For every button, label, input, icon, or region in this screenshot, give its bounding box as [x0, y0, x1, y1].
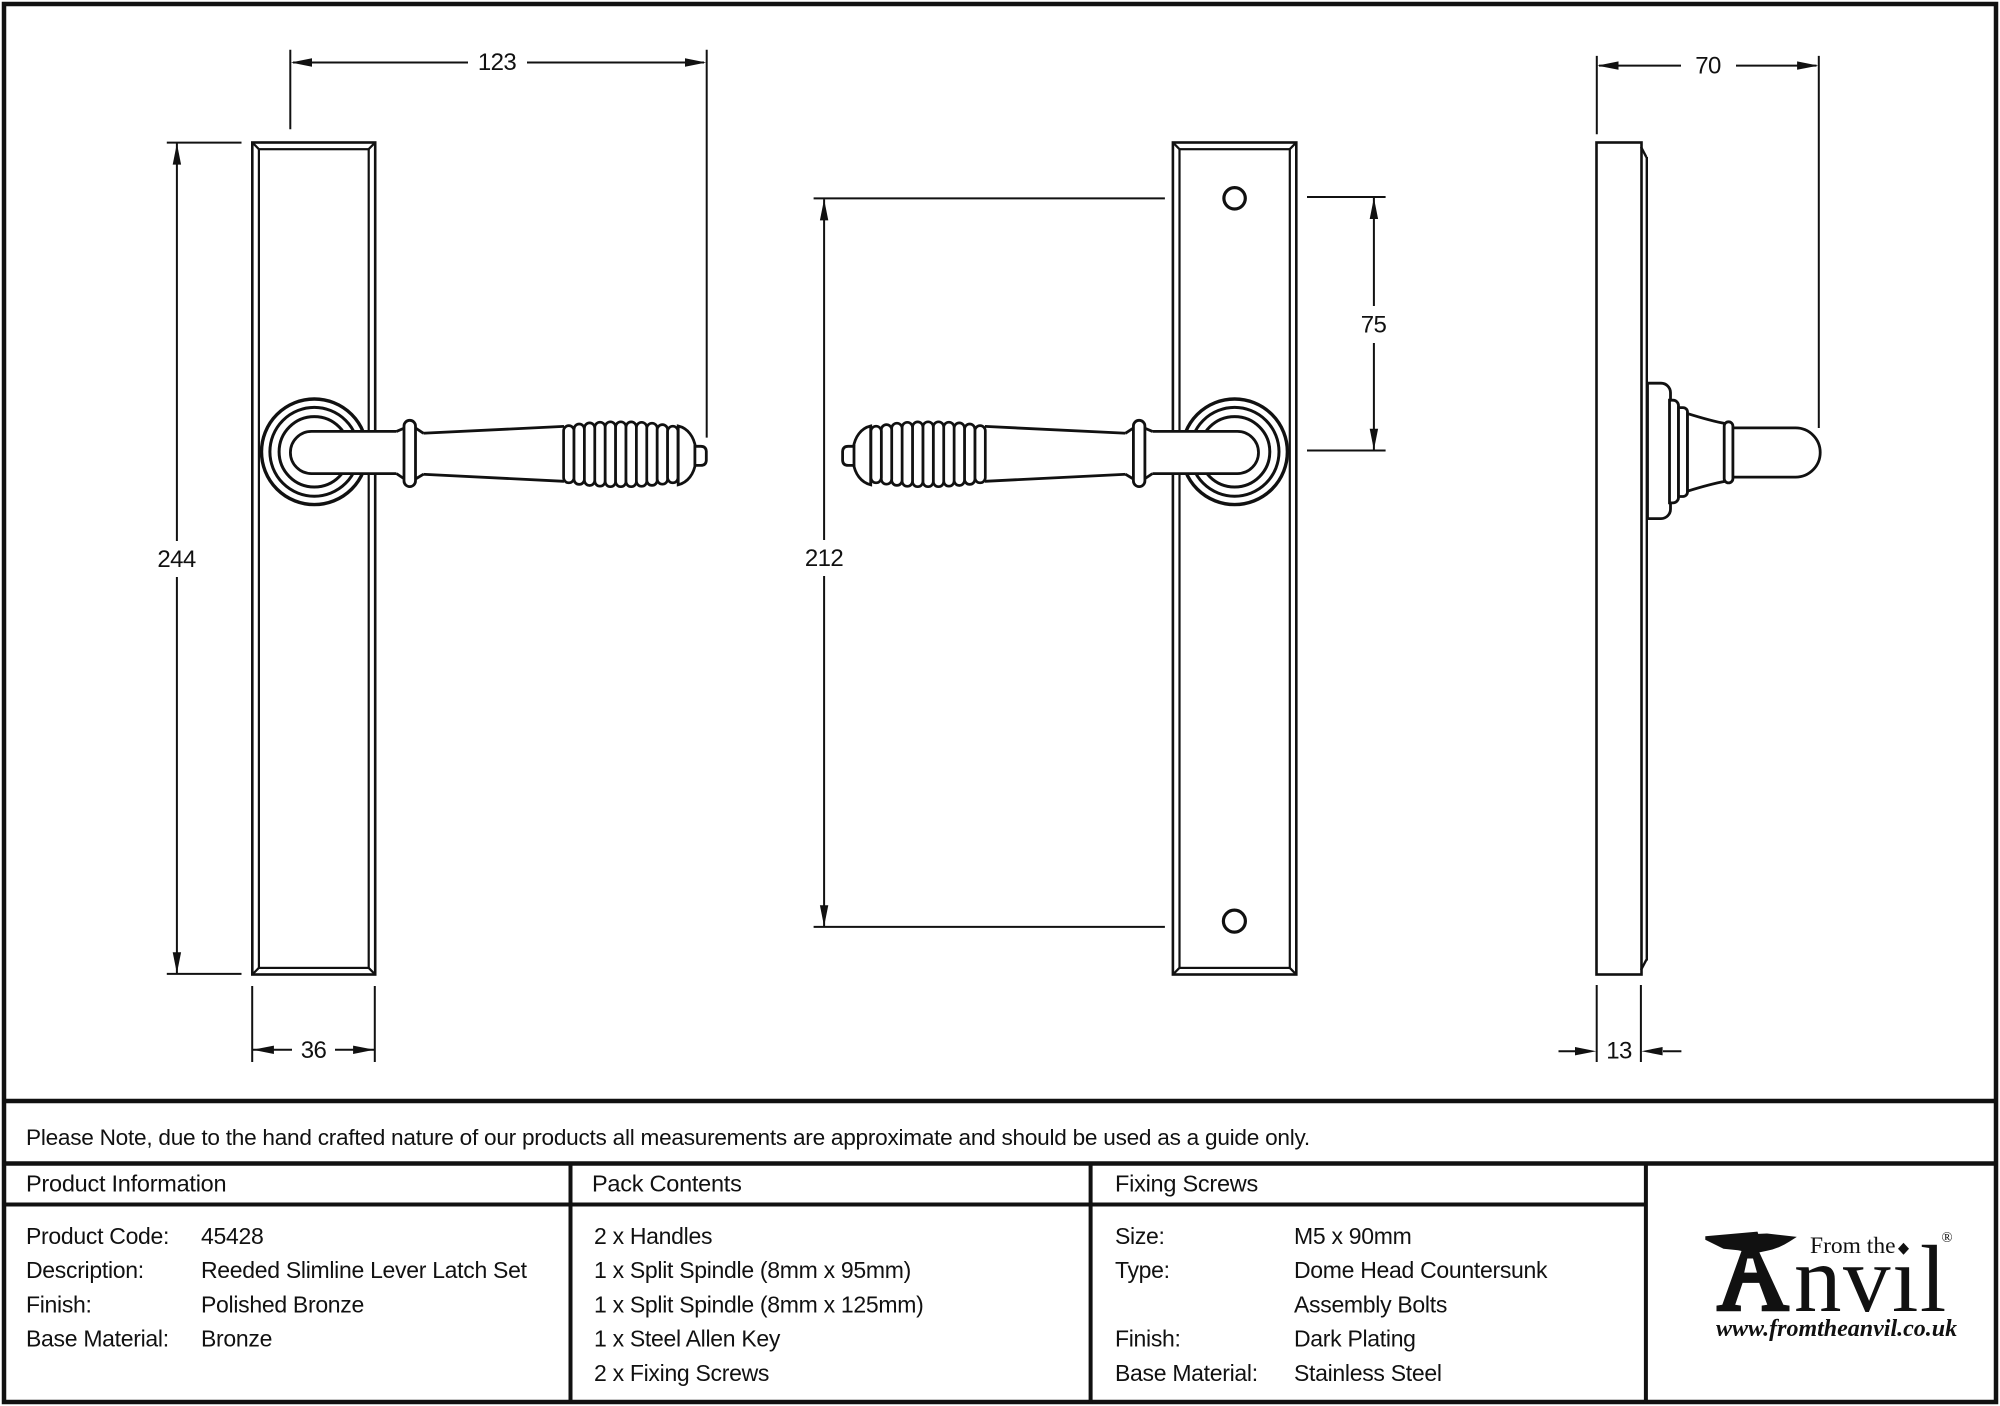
svg-text:45428: 45428: [201, 1223, 263, 1249]
svg-text:36: 36: [301, 1037, 327, 1064]
svg-text:Dark Plating: Dark Plating: [1294, 1326, 1416, 1352]
svg-text:Product Information: Product Information: [26, 1171, 226, 1197]
svg-text:Stainless Steel: Stainless Steel: [1294, 1360, 1442, 1386]
svg-text:Dome Head Countersunk: Dome Head Countersunk: [1294, 1257, 1548, 1283]
svg-text:Finish:: Finish:: [1115, 1326, 1181, 1352]
svg-text:13: 13: [1606, 1038, 1632, 1065]
svg-text:70: 70: [1695, 52, 1721, 79]
svg-text:212: 212: [805, 545, 843, 572]
svg-text:Base Material:: Base Material:: [1115, 1360, 1258, 1386]
svg-text:Bronze: Bronze: [201, 1326, 272, 1352]
svg-text:Finish:: Finish:: [26, 1291, 92, 1317]
svg-text:Reeded Slimline Lever Latch Se: Reeded Slimline Lever Latch Set: [201, 1257, 528, 1283]
svg-text:Polished Bronze: Polished Bronze: [201, 1291, 364, 1317]
svg-text:1 x Steel Allen Key: 1 x Steel Allen Key: [594, 1326, 781, 1352]
svg-text:Base Material:: Base Material:: [26, 1326, 169, 1352]
svg-text:75: 75: [1361, 312, 1387, 339]
svg-text:www.fromtheanvil.co.uk: www.fromtheanvil.co.uk: [1716, 1316, 1957, 1342]
svg-text:Type:: Type:: [1115, 1257, 1170, 1283]
svg-text:2 x Fixing Screws: 2 x Fixing Screws: [594, 1360, 769, 1386]
svg-text:M5 x 90mm: M5 x 90mm: [1294, 1223, 1411, 1249]
svg-text:123: 123: [478, 49, 516, 76]
svg-text:Assembly Bolts: Assembly Bolts: [1294, 1291, 1447, 1317]
svg-text:244: 244: [157, 546, 195, 573]
svg-text:Pack Contents: Pack Contents: [592, 1171, 742, 1197]
svg-text:Please Note, due to the hand c: Please Note, due to the hand crafted nat…: [26, 1125, 1310, 1150]
svg-text:2 x Handles: 2 x Handles: [594, 1223, 712, 1249]
svg-text:Size:: Size:: [1115, 1223, 1165, 1249]
svg-text:®: ®: [1942, 1230, 1953, 1246]
svg-text:1 x Split Spindle (8mm x 95mm): 1 x Split Spindle (8mm x 95mm): [594, 1257, 911, 1283]
svg-text:Product Code:: Product Code:: [26, 1223, 169, 1249]
svg-text:1 x Split Spindle (8mm x 125mm: 1 x Split Spindle (8mm x 125mm): [594, 1291, 923, 1317]
svg-text:Description:: Description:: [26, 1257, 144, 1283]
svg-text:Fixing Screws: Fixing Screws: [1115, 1171, 1258, 1197]
